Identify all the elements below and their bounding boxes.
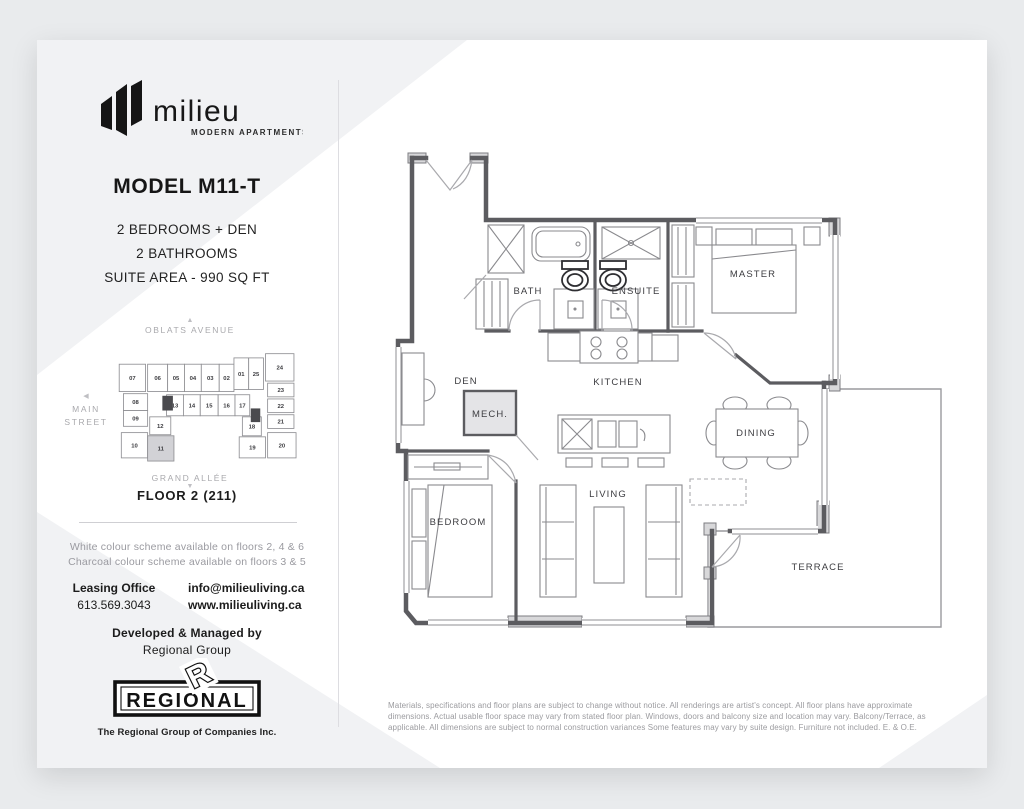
floor-plan: BATHENSUITEMASTERDENKITCHENMECH.DININGBE… bbox=[390, 133, 970, 683]
keyplan-unit-label: 22 bbox=[278, 404, 285, 410]
spec-bedrooms: 2 BEDROOMS + DEN bbox=[37, 218, 337, 242]
website-url: www.milieuliving.ca bbox=[188, 597, 324, 614]
fridge bbox=[652, 335, 678, 361]
keyplan-unit-label: 18 bbox=[249, 424, 256, 430]
brochure-sheet: milieu MODERN APARTMENTS MODEL M11-T 2 B… bbox=[37, 40, 987, 768]
room-label-kitchen: KITCHEN bbox=[593, 377, 642, 388]
street-bottom: GRAND ALLÉE bbox=[55, 473, 325, 483]
sidebar-divider bbox=[338, 80, 339, 727]
divider-rule bbox=[79, 522, 297, 523]
room-label-ensuite: ENSUITE bbox=[612, 286, 661, 297]
email-address: info@milieuliving.ca bbox=[188, 580, 324, 597]
keyplan-unit-label: 16 bbox=[223, 403, 230, 409]
keyplan-unit-label: 15 bbox=[206, 403, 213, 409]
keyplan-unit-label: 02 bbox=[223, 376, 230, 382]
street-left-block: ◀ MAIN STREET bbox=[57, 393, 115, 429]
keyplan-unit-label: 17 bbox=[239, 403, 246, 409]
floor-label: FLOOR 2 (211) bbox=[37, 488, 337, 503]
keyplan-unit-label: 23 bbox=[278, 388, 285, 394]
street-top: OBLATS AVENUE bbox=[55, 325, 325, 335]
phone-number: 613.569.3043 bbox=[50, 597, 178, 614]
arrow-up-icon: ▲ bbox=[55, 317, 325, 325]
keyplan-unit-label: 20 bbox=[279, 443, 286, 449]
keyplan-unit-label: 01 bbox=[238, 372, 245, 378]
room-label-master: MASTER bbox=[730, 269, 776, 280]
keyplan-svg: 0706050403020125242322212008091013141516… bbox=[115, 349, 315, 471]
room-label-mech: MECH. bbox=[472, 409, 508, 420]
note-white-scheme: White colour scheme available on floors … bbox=[37, 540, 337, 555]
street-left-line1: MAIN bbox=[57, 403, 115, 416]
keyplan-unit-label: 07 bbox=[129, 376, 136, 382]
keyplan-unit-label: 04 bbox=[190, 376, 197, 382]
elevator-core bbox=[251, 408, 260, 422]
entry-doors bbox=[426, 160, 472, 190]
floorplan-sheet-page: { "brand": { "name": "milieu", "tagline"… bbox=[0, 0, 1024, 809]
disclaimer: Materials, specifications and floor plan… bbox=[388, 700, 954, 733]
brand-tagline: MODERN APARTMENTS bbox=[191, 128, 303, 137]
milieu-logo: milieu MODERN APARTMENTS bbox=[71, 80, 303, 142]
contact-block: Leasing Office 613.569.3043 info@milieul… bbox=[37, 580, 337, 614]
keyplan-unit-label: 03 bbox=[207, 376, 214, 382]
room-label-terrace: TERRACE bbox=[791, 562, 844, 573]
model-title: MODEL M11-T bbox=[37, 175, 337, 199]
keyplan-unit-label: 10 bbox=[131, 443, 138, 449]
stove bbox=[580, 331, 638, 363]
developer-block: Developed & Managed by Regional Group bbox=[37, 626, 337, 657]
room-label-dining: DINING bbox=[736, 428, 776, 439]
keyplan-unit-label: 06 bbox=[154, 376, 161, 382]
kitchen-island bbox=[558, 415, 670, 467]
keyplan-unit-label: 24 bbox=[276, 365, 283, 371]
keyplan-block: ▲ OBLATS AVENUE ◀ MAIN STREET 0706050403… bbox=[55, 317, 325, 507]
keyplan-unit-label: 12 bbox=[157, 424, 164, 430]
den-desk bbox=[402, 353, 424, 425]
coffee-table bbox=[594, 507, 624, 583]
milieu-logo-mark bbox=[101, 80, 142, 136]
keyplan-unit-label: 25 bbox=[253, 372, 260, 378]
room-label-den: DEN bbox=[454, 376, 477, 387]
bathtub bbox=[532, 227, 590, 261]
stair-core bbox=[162, 396, 173, 411]
optional-outline bbox=[690, 479, 746, 505]
note-charcoal-scheme: Charcoal colour scheme available on floo… bbox=[37, 555, 337, 570]
spec-bathrooms: 2 BATHROOMS bbox=[37, 242, 337, 266]
spec-area: SUITE AREA - 990 SQ FT bbox=[37, 266, 337, 290]
keyplan-unit-label: 05 bbox=[173, 376, 180, 382]
room-label-living: LIVING bbox=[589, 489, 627, 500]
brand-logo-block: milieu MODERN APARTMENTS bbox=[37, 80, 337, 147]
bedroom-bed bbox=[412, 485, 492, 597]
model-specs-block: 2 BEDROOMS + DEN 2 BATHROOMS SUITE AREA … bbox=[37, 218, 337, 290]
model-title-block: MODEL M11-T bbox=[37, 175, 337, 199]
street-left-line2: STREET bbox=[57, 416, 115, 429]
developer-name: Regional Group bbox=[37, 643, 337, 657]
floor-label-block: FLOOR 2 (211) bbox=[37, 488, 337, 503]
arrow-left-icon: ◀ bbox=[57, 393, 115, 401]
regional-logo-block: REGIONAL R The Regional Group of Compani… bbox=[37, 658, 337, 738]
room-label-bath: BATH bbox=[513, 286, 542, 297]
keyplan-unit-label: 11 bbox=[158, 447, 165, 453]
developed-by-label: Developed & Managed by bbox=[37, 626, 337, 640]
keyplan-unit-label: 14 bbox=[189, 403, 196, 409]
regional-logo: REGIONAL R bbox=[104, 658, 270, 722]
keyplan-unit-label: 09 bbox=[132, 417, 139, 423]
regional-caption: The Regional Group of Companies Inc. bbox=[37, 727, 337, 738]
keyplan-unit-label: 19 bbox=[249, 445, 256, 451]
keyplan-unit-label: 21 bbox=[278, 420, 285, 426]
leasing-office-label: Leasing Office bbox=[50, 580, 178, 597]
keyplan-unit-label: 08 bbox=[132, 400, 139, 406]
colour-notes-block: White colour scheme available on floors … bbox=[37, 540, 337, 570]
regional-logo-text: REGIONAL bbox=[126, 690, 248, 712]
room-label-bedroom: BEDROOM bbox=[430, 517, 487, 528]
brand-name: milieu bbox=[153, 95, 240, 128]
sofas bbox=[540, 485, 682, 597]
